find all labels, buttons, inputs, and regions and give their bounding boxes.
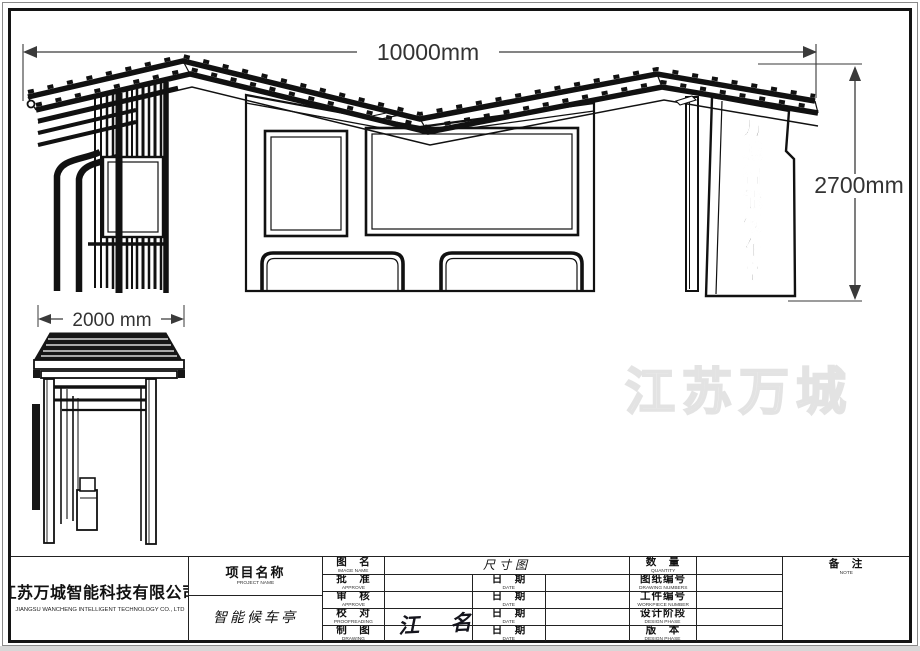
dimension-side-depth: 2000 mm xyxy=(72,310,151,331)
quantity-label-cell: 数 量 QUANTITY xyxy=(630,557,697,575)
side-post-right xyxy=(146,379,156,544)
page-edge xyxy=(0,646,920,651)
side-view xyxy=(32,333,185,544)
drawing-name-value-cell: 尺寸图 xyxy=(385,557,630,575)
note-zh: 备 注 xyxy=(829,559,864,570)
technical-drawing-svg: 10000mm 2700mm 2000 mm xyxy=(0,0,920,651)
quantity-zh: 数 量 xyxy=(646,557,681,568)
drafter-zh: 制 图 xyxy=(336,626,371,636)
side-roof-slab xyxy=(35,333,181,359)
version-zh: 版 本 xyxy=(646,626,681,636)
drawing-number-label-cell: 图纸编号 DRAWING NUMBERS xyxy=(630,575,697,592)
design-phase-value-cell xyxy=(697,609,783,626)
examine-label-cell: 审 核 APPROVE xyxy=(323,592,385,609)
proofread-en: PROOFREADING xyxy=(334,620,373,625)
date-zh: 日 期 xyxy=(492,609,527,619)
date-en: DATE xyxy=(503,603,515,608)
drawing-name-value: 尺寸图 xyxy=(483,559,531,572)
workpiece-number-value-cell xyxy=(697,592,783,609)
note-en: NOTE xyxy=(839,571,852,576)
date-en: DATE xyxy=(503,620,515,625)
drawing-number-zh: 图纸编号 xyxy=(640,575,686,585)
examine-zh: 审 核 xyxy=(336,592,371,602)
workpiece-number-label-cell: 工件编号 WORKPIECE NUMBER xyxy=(630,592,697,609)
arrow-left-icon xyxy=(23,46,37,58)
approve-en: APPROVE xyxy=(342,586,365,591)
side-post-left xyxy=(44,379,54,543)
approve-label-cell: 批 准 APPROVE xyxy=(323,575,385,592)
drafter-signature: 江 名 xyxy=(397,606,484,640)
project-label-zh: 项目名称 xyxy=(225,566,285,580)
approve-date-value-cell xyxy=(546,575,630,592)
company-name-zh: 江苏万城智能科技有限公司 xyxy=(11,585,189,602)
project-value-cell: 智能候车亭 xyxy=(189,596,323,641)
note-cell: 备 注 NOTE xyxy=(783,557,909,641)
company-name-en: JIANGSU WANCHENG INTELLIGENT TECHNOLOGY … xyxy=(15,606,184,612)
display-panels xyxy=(265,128,578,236)
dimension-overall-width: 10000mm xyxy=(377,39,479,65)
large-display-panel xyxy=(366,128,578,235)
approve-zh: 批 准 xyxy=(336,575,371,585)
drawing-number-value-cell xyxy=(697,575,783,592)
dimension-overall-height: 2700mm xyxy=(814,172,903,198)
rear-post xyxy=(686,97,698,291)
proofread-zh: 校 对 xyxy=(336,609,371,619)
project-label-cell: 项目名称 PROJECT NAME xyxy=(189,557,323,596)
quantity-value-cell xyxy=(697,557,783,575)
arrow-right-icon xyxy=(803,46,817,58)
date-zh: 日 期 xyxy=(492,575,527,585)
examine-date-value-cell xyxy=(546,592,630,609)
drafter-date-value-cell xyxy=(546,626,630,641)
drawing-name-label-en: IMAGE NAME xyxy=(338,569,369,574)
proofread-date-value-cell xyxy=(546,609,630,626)
date-en: DATE xyxy=(503,586,515,591)
date-zh: 日 期 xyxy=(492,592,527,602)
workpiece-number-zh: 工件编号 xyxy=(640,592,686,602)
approve-value-cell xyxy=(385,575,473,592)
approve-date-label-cell: 日 期 DATE xyxy=(473,575,546,592)
company-cell: 江苏万城智能科技有限公司 JIANGSU WANCHENG INTELLIGEN… xyxy=(11,557,189,641)
arrow-up-icon xyxy=(849,66,861,81)
arrow-right-icon xyxy=(171,314,184,324)
drawing-number-en: DRAWING NUMBERS xyxy=(639,586,687,591)
version-label-cell: 版 本 DESIGN PHASE xyxy=(630,626,697,641)
drawing-name-label-zh: 图 名 xyxy=(336,557,371,568)
arrow-down-icon xyxy=(849,285,861,300)
drawing-name-label-cell: 图 名 IMAGE NAME xyxy=(323,557,385,575)
version-en: DESIGN PHASE xyxy=(645,637,681,641)
workpiece-number-en: WORKPIECE NUMBER xyxy=(637,603,688,608)
drawing-sheet: 江苏万城 xyxy=(0,0,920,651)
small-display-panel xyxy=(265,131,347,236)
trash-bin xyxy=(77,490,97,530)
front-elevation: 10000mm 2700mm 2000 mm xyxy=(23,39,907,544)
proofread-label-cell: 校 对 PROOFREADING xyxy=(323,609,385,626)
design-phase-label-cell: 设计阶段 DESIGN PHASE xyxy=(630,609,697,626)
drafter-en: DRAWING xyxy=(342,637,365,641)
quantity-en: QUANTITY xyxy=(651,569,675,574)
totem-sign-text: 万城智能候车亭 xyxy=(736,117,766,297)
left-slat-module xyxy=(38,82,178,293)
design-phase-zh: 设计阶段 xyxy=(640,609,686,619)
proofread-date-label-cell: 日 期 DATE xyxy=(473,609,546,626)
project-label-en: PROJECT NAME xyxy=(237,580,275,585)
left-panel xyxy=(103,157,163,237)
date-en: DATE xyxy=(503,637,515,641)
project-value: 智能候车亭 xyxy=(213,611,298,626)
drafter-label-cell: 制 图 DRAWING xyxy=(323,626,385,641)
date-zh: 日 期 xyxy=(492,626,527,636)
eave-tip xyxy=(28,101,35,108)
arrow-left-icon xyxy=(38,314,51,324)
version-value-cell xyxy=(697,626,783,641)
design-phase-en: DESIGN PHASE xyxy=(645,620,681,625)
examine-en: APPROVE xyxy=(342,603,365,608)
roof xyxy=(28,56,819,145)
examine-date-label-cell: 日 期 DATE xyxy=(473,592,546,609)
